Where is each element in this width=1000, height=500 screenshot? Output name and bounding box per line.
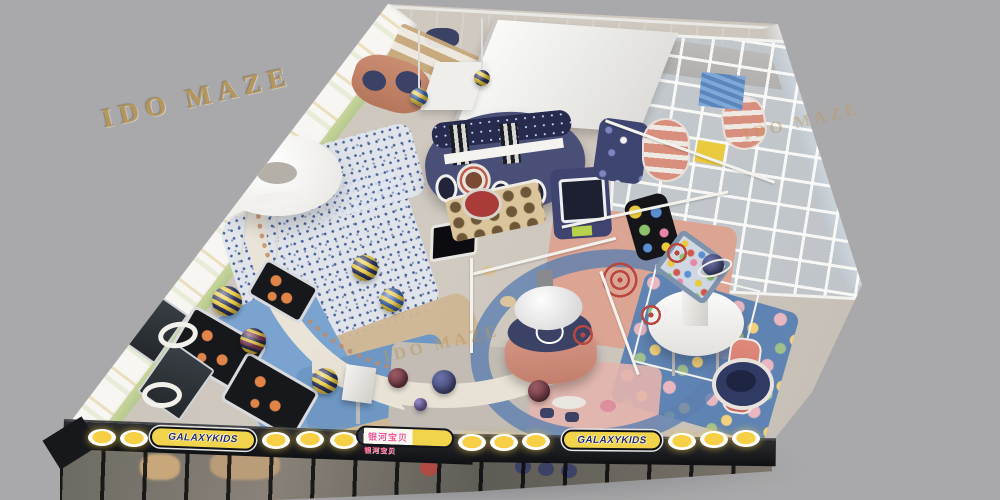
ring-canopy-hole (257, 162, 297, 184)
white-dish (552, 396, 586, 409)
planet-ball (240, 328, 266, 354)
round-lamp-icon (330, 432, 358, 449)
round-lamp-icon (88, 429, 116, 446)
floor-spiral (666, 242, 688, 264)
gate-navy-arch (360, 67, 389, 93)
red-round-table (462, 188, 502, 220)
cube-sculpture (342, 364, 377, 404)
galaxy-kids-sign-right-label: GALAXYKIDS (577, 434, 647, 446)
toddler-seat (540, 408, 554, 418)
floor-spiral (570, 322, 596, 348)
round-lamp-icon (490, 434, 518, 451)
round-lamp-icon (458, 434, 486, 451)
round-lamp-icon (120, 430, 148, 447)
floor-spiral (636, 300, 666, 330)
round-lamp-icon (262, 432, 290, 449)
round-lamp-icon (668, 433, 696, 450)
planet-ball (352, 255, 378, 281)
round-lamp-icon (700, 431, 728, 448)
planet-ball (312, 368, 338, 394)
toddler-ride (600, 400, 616, 412)
planet-ball-purple (414, 398, 427, 411)
white-hoop (142, 382, 182, 408)
round-lamp-icon (296, 431, 324, 448)
planet-ball (380, 288, 404, 312)
playground-render: GALAXYKIDS GALAXYKIDS 银河宝贝 银河宝贝 IDO MAZE… (0, 0, 1000, 500)
menu-tag (572, 225, 593, 236)
planet-ball-navy (432, 370, 456, 394)
galaxy-kids-sign-left: GALAXYKIDS (150, 426, 257, 451)
round-lamp-icon (732, 430, 760, 447)
planet-ball (212, 286, 242, 316)
planet-ball-maroon (528, 380, 550, 402)
center-brand-sign-label: 银河宝贝 (368, 429, 408, 443)
navy-round-pool (712, 358, 774, 410)
toddler-seat (565, 412, 579, 422)
hanging-wire (481, 18, 483, 72)
galaxy-kids-sign-right: GALAXYKIDS (562, 430, 662, 451)
hanging-planet (410, 88, 428, 106)
pool-inner (726, 370, 756, 392)
galaxy-kids-sign-left-label: GALAXYKIDS (168, 432, 238, 446)
hanging-planet (474, 70, 490, 86)
blue-corrugated-mat (698, 72, 745, 110)
round-lamp-icon (522, 433, 550, 450)
ido-maze-watermark-primary: IDO MAZE (99, 60, 296, 134)
center-brand-subtext: 银河宝贝 (364, 445, 396, 456)
planet-ball-maroon (388, 368, 408, 388)
hanging-wire (418, 30, 420, 90)
